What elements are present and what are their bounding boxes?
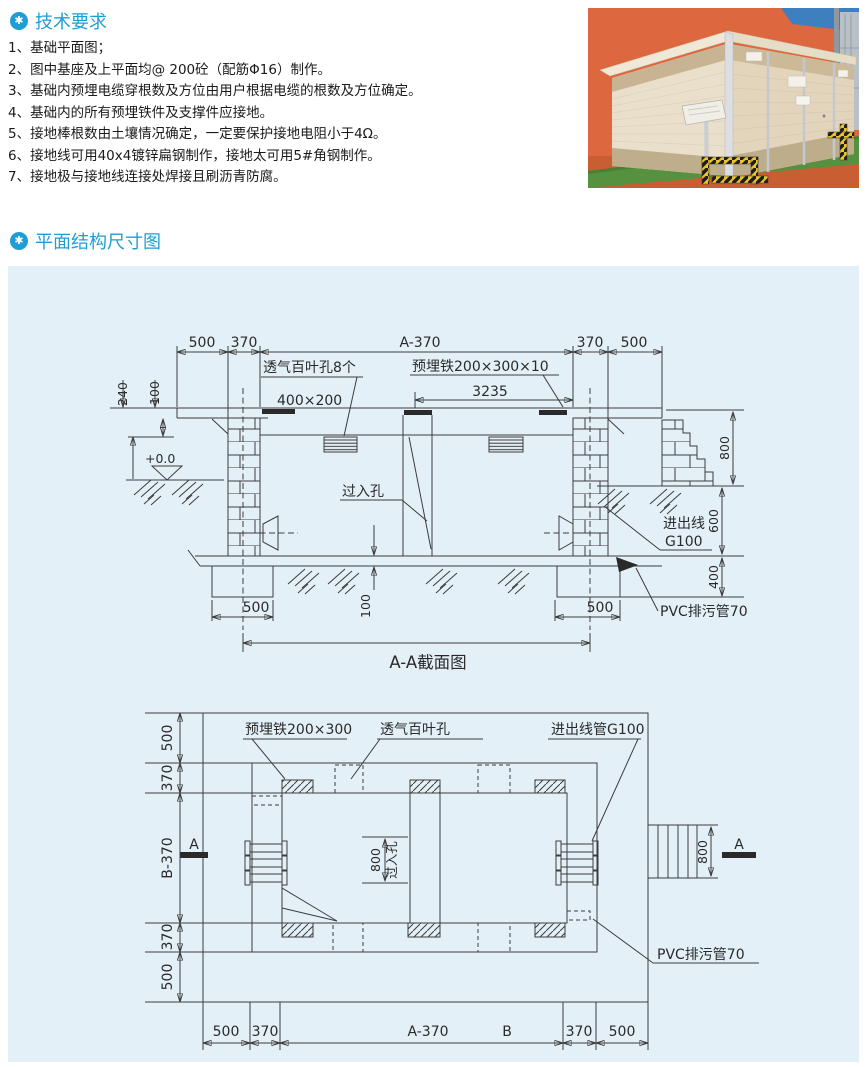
- technical-drawings: 500 370 A-370 370 500 3235 透气百叶孔8个 400×2…: [8, 266, 859, 1062]
- dim-label: 3235: [472, 384, 508, 400]
- louver-opening: [324, 437, 357, 452]
- cable-entry-funnels: [250, 516, 586, 550]
- plan-outer-boundary: [203, 713, 648, 1002]
- tech-requirements-header: ✱ 技术要求: [10, 8, 107, 34]
- section-markers: A A: [180, 837, 756, 858]
- dim-label: 100: [358, 594, 373, 618]
- dim-floor-100: 100: [358, 525, 374, 618]
- embedded-plate: [262, 409, 295, 414]
- dim-label: 370: [231, 335, 258, 351]
- section-view-drawing: 500 370 A-370 370 500 3235 透气百叶孔8个 400×2…: [110, 335, 748, 672]
- footing-dimensions: 500 500: [212, 600, 620, 621]
- dim-label: 800: [717, 436, 732, 460]
- plan-right-extension: 800: [648, 825, 718, 878]
- section-view-caption: A-A截面图: [389, 653, 466, 672]
- ground-level-label: +0.0: [145, 451, 175, 466]
- dim-label: B-370: [160, 837, 176, 878]
- tech-requirement-item: 4、基础内的所有预埋铁件及支撑件应接地。: [8, 103, 573, 125]
- plan-section-header: ✱ 平面结构尺寸图: [10, 228, 161, 254]
- dim-label: 370: [566, 1024, 593, 1040]
- section-walls: [212, 388, 624, 630]
- plan-view-drawing: 800 A A 800 过入孔 预埋铁200: [145, 713, 759, 1050]
- access-hole-label: 过入孔: [342, 484, 384, 500]
- dim-label: 370: [577, 335, 604, 351]
- louver-callout: 透气百叶孔8个: [263, 360, 356, 376]
- dim-label: A-370: [407, 1024, 448, 1040]
- plan-left-dimensions: 500 370 B-370 370 500: [145, 713, 282, 1002]
- pvc-pipe-callout: PVC排污管70: [657, 947, 745, 963]
- inout-line-callout: 进出线 G100: [604, 506, 712, 550]
- dim-label: B: [502, 1024, 512, 1040]
- access-hole-label: 过入孔: [384, 841, 399, 879]
- dim-label: 800: [368, 848, 383, 872]
- dim-label: 500: [189, 335, 216, 351]
- dim-label: 370: [252, 1024, 279, 1040]
- tech-requirement-item: 3、基础内预埋电缆穿根数及方位由用户根据电缆的根数及方位确定。: [8, 81, 573, 103]
- dim-label: 370: [160, 765, 176, 792]
- tech-requirement-item: 7、接地极与接地线连接处焊接且刷沥青防腐。: [8, 167, 573, 189]
- dim-label: A-370: [399, 335, 440, 351]
- dim-label: 500: [587, 600, 614, 616]
- tech-requirement-item: 5、接地棒根数由土壤情况确定，一定要保护接地电阻小于4Ω。: [8, 124, 573, 146]
- floor-and-footings: [188, 550, 662, 597]
- dim-label: 500: [621, 335, 648, 351]
- louver-callout: 透气百叶孔: [380, 722, 450, 738]
- access-hole-callout: 过入孔: [340, 484, 427, 521]
- dim-label: 500: [160, 725, 176, 752]
- plan-section-title: 平面结构尺寸图: [35, 228, 161, 254]
- embedded-iron-callout: 预埋铁200×300×10: [412, 359, 549, 375]
- louver-opening: [489, 437, 523, 452]
- plate-size-label: 400×200: [277, 393, 342, 409]
- section-caption-group: A-A截面图: [243, 633, 590, 672]
- dim-label: 370: [160, 924, 176, 951]
- tech-requirement-item: 6、接地线可用40x4镀锌扁钢制作，接地太可用5#角钢制作。: [8, 146, 573, 168]
- inout-conduit-callout: 进出线管G100: [551, 722, 645, 738]
- page: ✱ 技术要求 1、基础平面图； 2、图中基座及上平面均@ 200砼（配筋Φ16）…: [0, 0, 867, 1067]
- dim-label: 500: [609, 1024, 636, 1040]
- tech-requirement-item: 1、基础平面图；: [8, 38, 573, 60]
- brick-steps: [662, 420, 713, 486]
- embedded-plate: [539, 410, 567, 415]
- inout-line-label: 进出线: [663, 516, 705, 532]
- plan-bottom-dimensions: 500 370 A-370 B 370 500: [203, 1002, 648, 1050]
- left-brick-wall: [228, 418, 260, 556]
- dim-label: 600: [706, 509, 721, 533]
- right-footing: [557, 566, 620, 597]
- dim-label: 400: [706, 565, 721, 589]
- pvc-pipe-label: PVC排污管70: [660, 604, 748, 620]
- section-top-dimensions: 500 370 A-370 370 500: [177, 335, 662, 418]
- ground-level-marker: +0.0: [126, 451, 224, 480]
- section-star-icon: ✱: [10, 232, 28, 250]
- tech-requirements-title: 技术要求: [35, 8, 107, 34]
- plan-access-hole-dim: 800 过入孔: [362, 837, 408, 883]
- tech-requirements-list: 1、基础平面图； 2、图中基座及上平面均@ 200砼（配筋Φ16）制作。 3、基…: [8, 38, 573, 189]
- dim-label: 800: [695, 840, 710, 864]
- substation-photo: [588, 8, 859, 188]
- dim-label: 500: [243, 600, 270, 616]
- embedded-plate: [404, 410, 432, 415]
- section-marker-a-right: A: [734, 837, 744, 853]
- drawing-panel: 500 370 A-370 370 500 3235 透气百叶孔8个 400×2…: [8, 266, 859, 1062]
- dim-3235: 3235: [415, 384, 573, 408]
- section-marker-a-left: A: [189, 837, 199, 853]
- plan-cable-conduits: [245, 841, 598, 885]
- dim-label: 500: [213, 1024, 240, 1040]
- plan-callouts: 预埋铁200×300 透气百叶孔 进出线管G100 PVC排污管70: [243, 722, 759, 963]
- tech-requirement-item: 2、图中基座及上平面均@ 200砼（配筋Φ16）制作。: [8, 60, 573, 82]
- plan-pit-opening: [282, 793, 567, 923]
- pvc-pipe-outlet: [616, 557, 638, 572]
- embedded-iron-callout: 预埋铁200×300: [245, 722, 352, 738]
- dim-label: 500: [160, 964, 176, 991]
- inout-g100-label: G100: [665, 534, 703, 550]
- section-callouts: 透气百叶孔8个 400×200 预埋铁200×300×10: [261, 359, 563, 436]
- section-star-icon: ✱: [10, 12, 28, 30]
